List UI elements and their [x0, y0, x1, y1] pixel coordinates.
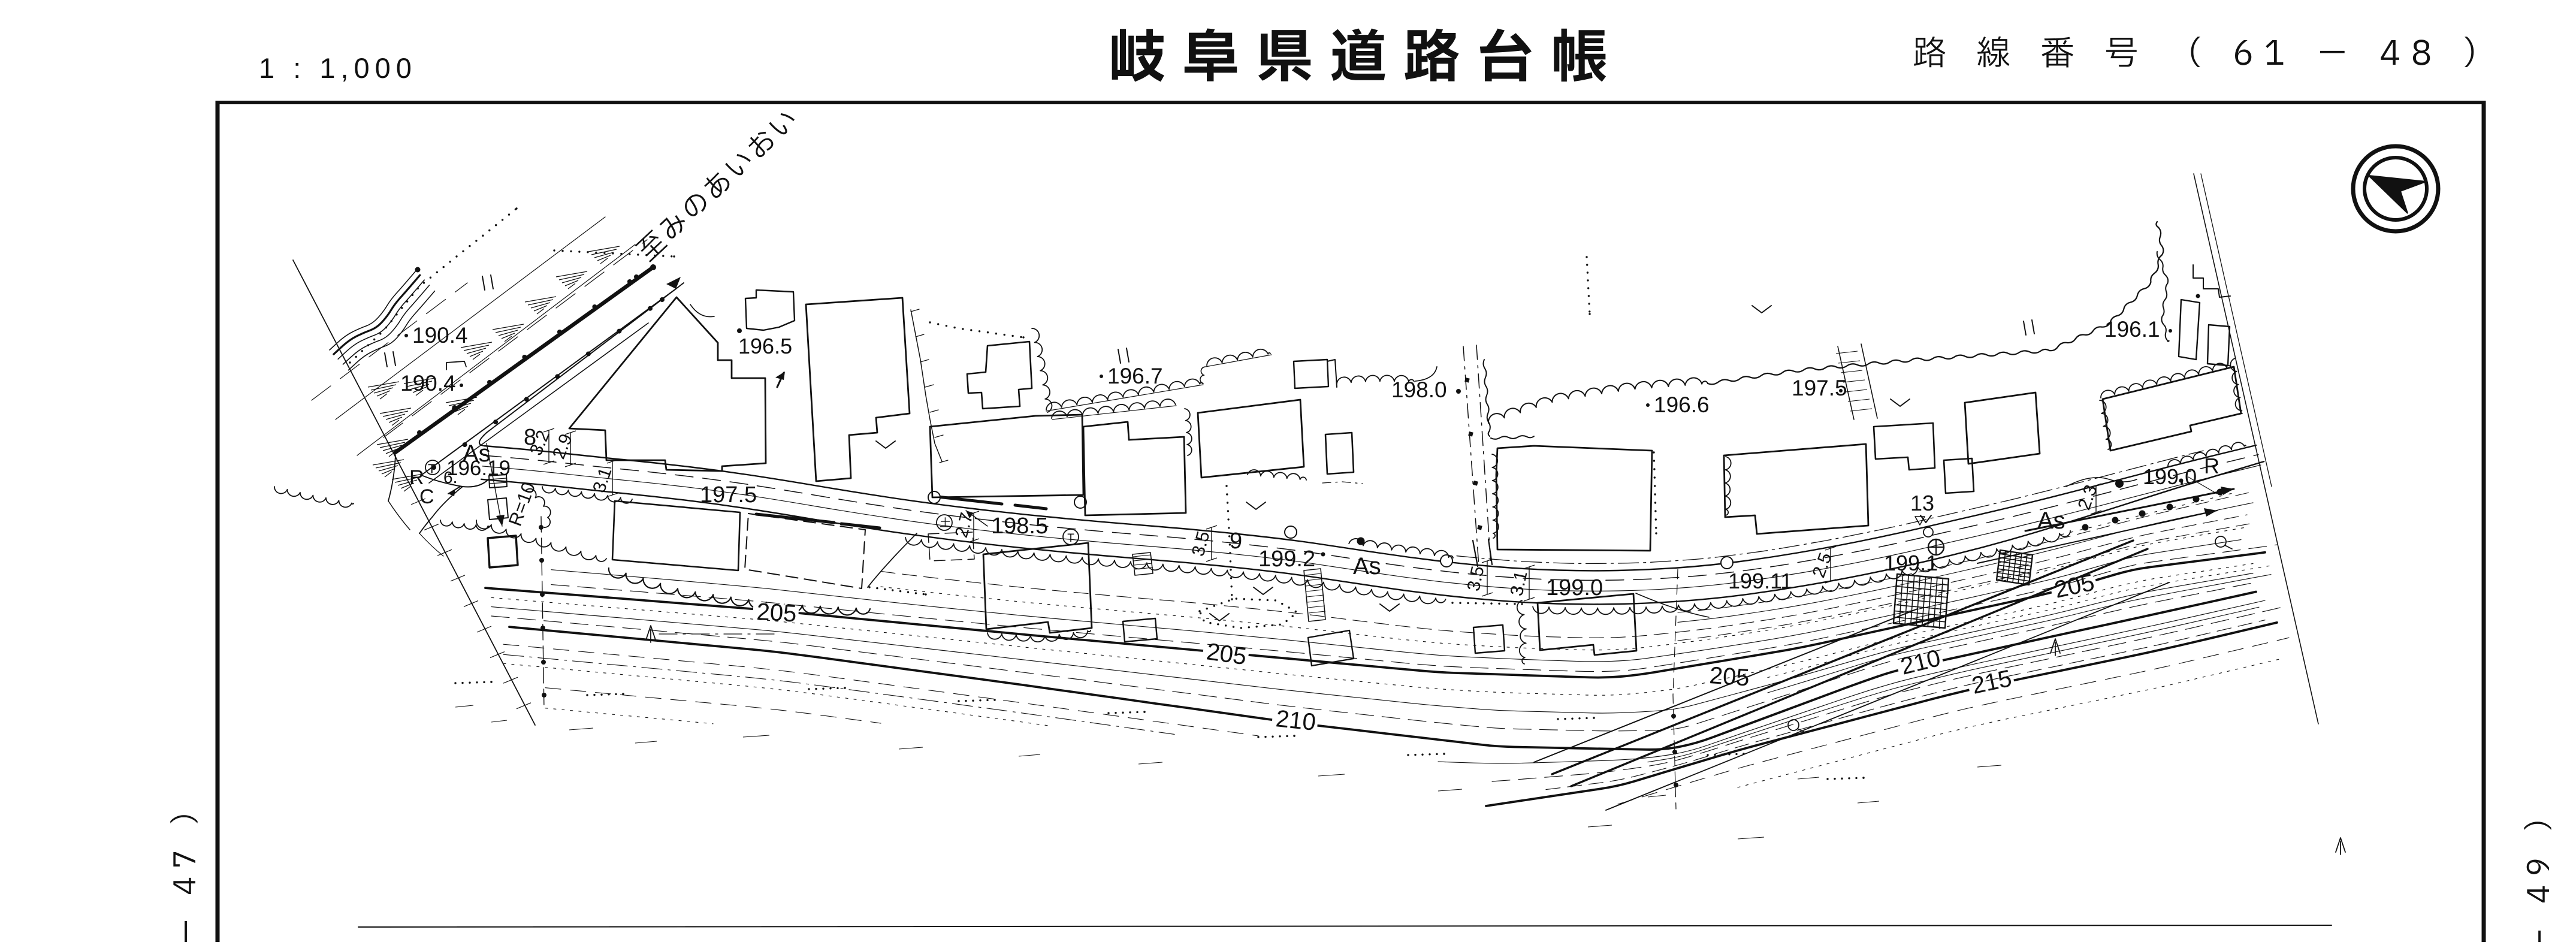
svg-text:1 : 1,000: 1 : 1,000: [259, 52, 417, 84]
svg-text:R: R: [2204, 454, 2219, 478]
svg-text:As: As: [1353, 553, 1381, 579]
svg-text:9: 9: [1230, 529, 1242, 554]
svg-text:198.0: 198.0: [1391, 378, 1447, 402]
svg-text:199.2: 199.2: [1258, 547, 1315, 572]
svg-text:210: 210: [1275, 705, 1317, 736]
svg-text:8: 8: [524, 425, 536, 450]
svg-text:205: 205: [1708, 662, 1750, 692]
svg-text:T: T: [428, 461, 436, 476]
svg-text:199.11: 199.11: [1728, 569, 1792, 593]
svg-text:As: As: [2037, 508, 2065, 534]
svg-text:199.1: 199.1: [1884, 551, 1938, 575]
svg-text:205: 205: [1205, 638, 1248, 670]
svg-text:13: 13: [1910, 491, 1934, 515]
svg-text:6.: 6.: [443, 468, 457, 487]
svg-text:196.6: 196.6: [1654, 393, 1710, 417]
svg-text:196.5: 196.5: [738, 334, 792, 358]
svg-text:199.0: 199.0: [1546, 575, 1603, 600]
svg-text:T: T: [1067, 532, 1074, 545]
svg-text:190.4: 190.4: [400, 371, 456, 395]
svg-text:198.5: 198.5: [991, 514, 1048, 539]
svg-text:199.0: 199.0: [2143, 464, 2197, 489]
svg-text:190.4: 190.4: [412, 323, 468, 348]
svg-text:196.7: 196.7: [1107, 364, 1163, 388]
svg-text:197.5: 197.5: [1792, 376, 1847, 400]
svg-text:196.1: 196.1: [2104, 317, 2160, 342]
svg-text:C: C: [419, 485, 434, 508]
svg-text:197.5: 197.5: [700, 482, 757, 508]
